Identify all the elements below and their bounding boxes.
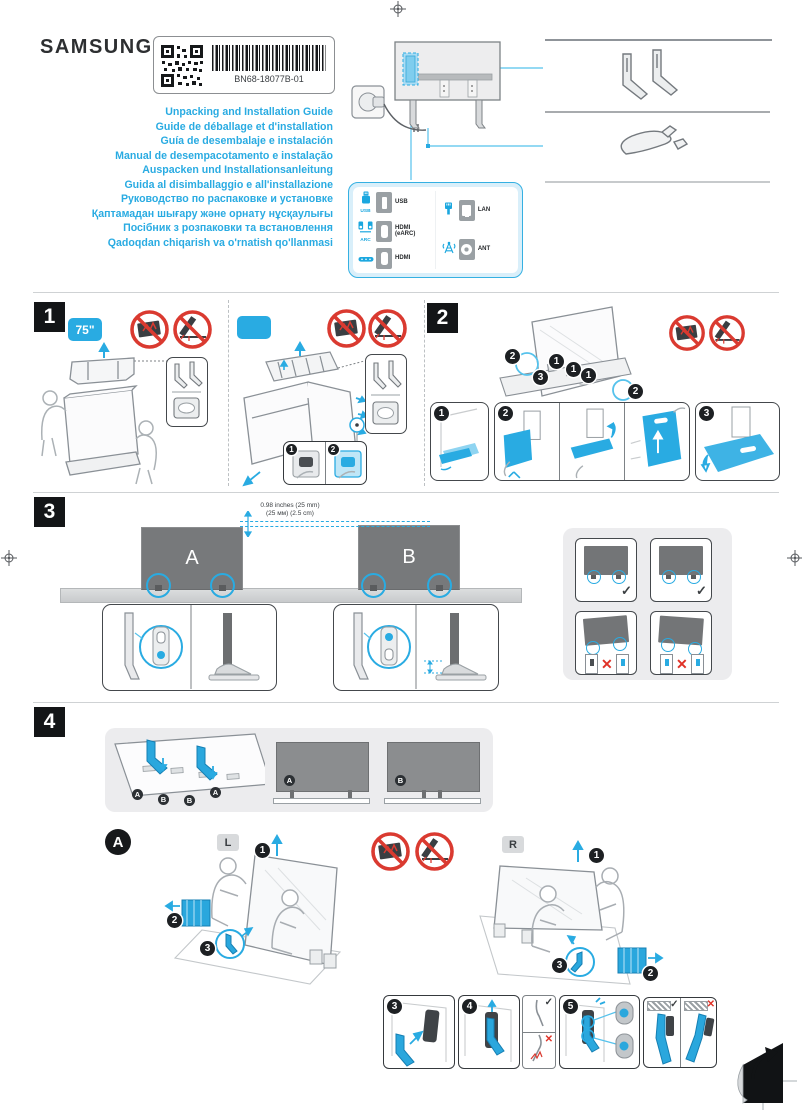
- prohibition-no-drop-edge-icon: [414, 831, 455, 872]
- check-mark: ✓: [621, 583, 632, 599]
- unbox-step-3-panel: 3: [695, 402, 780, 481]
- hdmi-earc-port-icon: [376, 221, 392, 242]
- gap-measurement-line2: (25 мм) (2.5 cm): [240, 510, 340, 518]
- check-mark: ✓: [545, 997, 553, 1008]
- step-1-callout: 1: [286, 444, 297, 455]
- registration-mark-icon: [389, 0, 407, 18]
- usb-port-icon: [376, 192, 392, 213]
- step-3-callout: 3: [699, 406, 714, 421]
- callout-2: 2: [505, 349, 520, 364]
- up-arrow-icon: [273, 836, 281, 856]
- hdmi-earc-port-row: ARC HDMI (eARC): [358, 220, 435, 243]
- step-3-callout: 3: [387, 999, 402, 1014]
- leg-click-step-5-panel: 5: [559, 995, 640, 1069]
- level-bad-cell: ✕: [575, 611, 637, 675]
- callout-1: 1: [581, 368, 596, 383]
- leg-correct-cell: ✓: [644, 998, 681, 1067]
- assembly-a-badge: A: [105, 829, 131, 855]
- step-1-callout: 1: [434, 406, 449, 421]
- manual-page: SAMSUNG BN68-18077B-01 Unpacking and Ins…: [0, 0, 802, 1116]
- parts-callout-panel: [365, 354, 407, 434]
- callout-2: 2: [628, 384, 643, 399]
- title-ru: Руководство по распаковке и установке: [60, 192, 333, 207]
- handle-steps-panel: 1 2: [283, 441, 367, 485]
- leg-callout: [566, 936, 594, 976]
- top-foam-icon: [70, 358, 134, 384]
- section-divider: [33, 292, 779, 293]
- leg-detail-art-b: [334, 605, 497, 689]
- slot-label-a: A: [210, 787, 221, 798]
- tv-b-label: B: [402, 546, 415, 569]
- title-block: Unpacking and Installation Guide Guide d…: [60, 105, 333, 250]
- ports-column-left: USB USB ARC HDMI (eARC): [358, 191, 435, 269]
- leg-wrong-cell: ✕: [681, 998, 717, 1067]
- foot-highlight-ring: [427, 573, 452, 598]
- prohibition-no-press-screen-icon: [668, 314, 706, 352]
- tv-a-label: A: [185, 547, 198, 570]
- tv-b-front: B: [387, 742, 480, 792]
- registration-mark-icon: [786, 549, 802, 567]
- section-3-badge: 3: [34, 497, 65, 527]
- tv-a-circle-label: A: [284, 775, 295, 786]
- leveling-grid: ✓ ✓ ✕ ✕: [563, 528, 732, 680]
- level-ok-cell: ✓: [575, 538, 637, 602]
- gap-measurement-line1: 0.98 inches (25 mm): [240, 502, 340, 510]
- prohibition-no-face-down-icon: [708, 314, 746, 352]
- person-left-icon: [42, 391, 66, 456]
- accessory-box-icon: [373, 402, 398, 424]
- shelf: [60, 588, 522, 603]
- lift-top-foam-scene: [36, 336, 168, 488]
- gap-dimension-line: [240, 526, 430, 527]
- sub-section-divider: [424, 300, 425, 486]
- lan-port-label: LAN: [478, 207, 500, 214]
- foot-highlight-ring: [146, 573, 171, 598]
- leg-callout-3: 3: [200, 941, 215, 956]
- antenna-icon: [442, 241, 456, 254]
- leg-detail-art-a: [103, 605, 275, 689]
- callout-3: 3: [533, 370, 548, 385]
- leg-callout-3: 3: [552, 958, 567, 973]
- parts-callout-art: [366, 355, 405, 432]
- arc-speakers-icon: [358, 221, 373, 233]
- foam-insert-icon: [266, 352, 338, 381]
- level-bad-cell: ✕: [650, 611, 712, 675]
- foot-highlight-ring: [361, 573, 386, 598]
- lan-port-icon: [459, 200, 475, 221]
- samsung-logo: SAMSUNG: [40, 36, 153, 59]
- gap-measurement: 0.98 inches (25 mm) (25 мм) (2.5 cm): [240, 502, 340, 518]
- cross-mark: ✕: [601, 656, 613, 673]
- step-4-callout: 4: [462, 999, 477, 1014]
- assembly-scene-right: [470, 832, 670, 992]
- foot-highlight-ring: [210, 573, 235, 598]
- lan-cable-icon: [443, 202, 454, 215]
- accessory-list: [545, 40, 772, 182]
- leg-detail-panel-b: [333, 604, 499, 691]
- stand-legs-icon: [623, 50, 677, 99]
- title-pt: Manual de desempacotamento e instalação: [60, 149, 333, 164]
- handle-step-2: 2: [326, 442, 367, 484]
- parts-callout-panel: [166, 357, 208, 427]
- slot-label-b: B: [158, 794, 169, 805]
- section-4-badge: 4: [34, 707, 65, 737]
- page-turn-icon: [725, 1035, 797, 1110]
- section-divider: [33, 702, 779, 703]
- up-arrow-icon: [296, 343, 304, 356]
- title-uk: Посібник з розпаковки та встановлення: [60, 221, 333, 236]
- callout-1: 1: [566, 362, 581, 377]
- ant-port-label: ANT: [478, 246, 500, 253]
- prohibition-no-lay-on-edge-icon: [367, 308, 408, 349]
- unbox-step-2b-art: [560, 403, 624, 480]
- tv-box-icon: [64, 386, 140, 475]
- title-fr: Guide de déballage et d'installation: [60, 120, 333, 135]
- size-blank-badge: [237, 316, 271, 339]
- tv-a-base: [273, 798, 370, 804]
- stand-pairing-panel: A B B A A B: [105, 728, 493, 812]
- hdmi-port-icon: [376, 248, 392, 269]
- step-5-callout: 5: [563, 999, 578, 1014]
- cross-mark: ✕: [707, 999, 715, 1010]
- handle-step-1: 1: [284, 442, 326, 484]
- step-2-callout: 2: [328, 444, 339, 455]
- part-number: BN68-18077B-01: [212, 74, 326, 84]
- ports-panel: USB USB ARC HDMI (eARC): [348, 182, 523, 278]
- tv-panel-icon: [245, 855, 337, 965]
- prohibition-no-press-screen-icon: [370, 831, 411, 872]
- tv-side-view-icon: [209, 613, 259, 680]
- usb-device-icon: [360, 191, 372, 204]
- leg-detail-panel-a: [102, 604, 277, 691]
- hdmi-earc-port-label: HDMI (eARC): [395, 225, 429, 238]
- leg-insert-step-3-panel: 3: [383, 995, 455, 1069]
- title-es: Guía de desembalaje e instalación: [60, 134, 333, 149]
- section-divider: [33, 492, 779, 493]
- cross-mark: ✕: [676, 656, 688, 673]
- lift-callout-1: 1: [255, 843, 270, 858]
- ant-port-icon: [459, 239, 475, 260]
- slot-label-a: A: [132, 789, 143, 800]
- unbox-step-2c-art: [625, 403, 689, 480]
- barcode-icon: [212, 45, 326, 71]
- title-uz: Qadoqdan chiqarish va o'rnatish qo'llanm…: [60, 236, 333, 251]
- lan-port-row: LAN: [442, 200, 513, 221]
- section-1-badge: 1: [34, 302, 65, 332]
- leg-orientation-check-panel: ✓ ✕: [522, 995, 556, 1069]
- person-right-icon: [136, 421, 156, 484]
- usb-icon-caption: USB: [358, 209, 373, 214]
- cable-tie-icon: [621, 126, 687, 154]
- title-it: Guida al disimballaggio e all'installazi…: [60, 178, 333, 193]
- tv-side-view-icon: [436, 613, 486, 680]
- callout-1: 1: [549, 354, 564, 369]
- unbox-step-1-panel: 1: [430, 402, 489, 481]
- hdmi-port-label: HDMI: [395, 255, 429, 262]
- title-kk: Қаптамадан шығару және орнату нұсқаулығы: [60, 207, 333, 222]
- slot-label-b: B: [184, 795, 195, 806]
- accessory-box-icon: [174, 398, 199, 418]
- tv-a-front: A: [276, 742, 369, 792]
- foam-callout-2: 2: [167, 913, 182, 928]
- leg-slide-step-4-panel: 4: [458, 995, 520, 1069]
- usb-port-row: USB USB: [358, 191, 435, 214]
- section-2-badge: 2: [427, 303, 458, 333]
- lift-callout-1: 1: [589, 848, 604, 863]
- person-back-icon: [212, 858, 246, 926]
- cross-mark: ✕: [545, 1034, 553, 1045]
- sub-section-divider: [228, 300, 229, 486]
- tv-back-icon: [395, 42, 500, 128]
- foam-callout-2: 2: [643, 966, 658, 981]
- soundbar-icon: [358, 256, 374, 263]
- hdmi-port-row: HDMI: [358, 248, 435, 269]
- qr-code-icon: [160, 44, 204, 88]
- parts-callout-art: [167, 358, 206, 425]
- arc-icon-caption: ARC: [358, 238, 373, 243]
- tv-b-circle-label: B: [395, 775, 406, 786]
- height-dimension-marks: [424, 661, 442, 673]
- up-arrow-icon: [100, 344, 108, 358]
- step-2-callout: 2: [498, 406, 513, 421]
- check-mark: ✓: [696, 583, 707, 599]
- gap-dimension-line: [240, 521, 430, 522]
- ant-port-row: ANT: [442, 239, 513, 260]
- stand-legs-icon: [374, 361, 401, 389]
- tv-b-base: [384, 798, 481, 804]
- stand-legs-icon: [175, 362, 202, 388]
- title-de: Auspacken und Installationsanleitung: [60, 163, 333, 178]
- usb-port-label: USB: [395, 199, 429, 206]
- prohibition-no-lay-on-edge-icon: [172, 309, 213, 350]
- product-label: BN68-18077B-01: [153, 36, 335, 94]
- unbox-step-2-panel: 2: [494, 402, 690, 481]
- leg-result-panel: ✓ ✕: [643, 997, 717, 1068]
- level-ok-cell: ✓: [650, 538, 712, 602]
- up-arrow-icon: [574, 842, 582, 862]
- title-en: Unpacking and Installation Guide: [60, 105, 333, 120]
- ports-column-right: LAN ANT: [435, 191, 513, 269]
- check-mark: ✓: [670, 999, 678, 1010]
- registration-mark-icon: [0, 549, 18, 567]
